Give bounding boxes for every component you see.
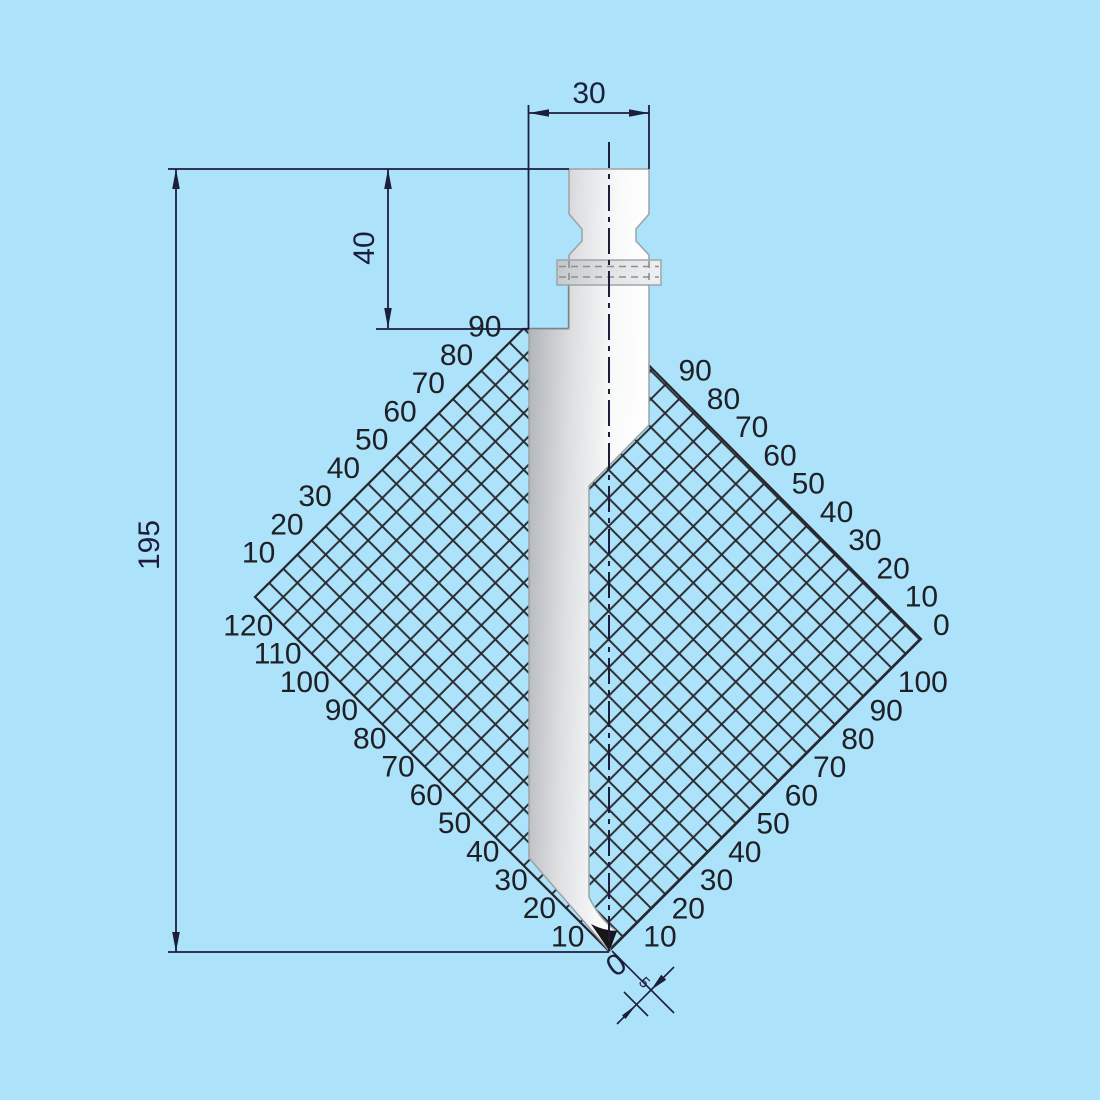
punch-drawing-svg: 1020304050607080901201101009080706050403…: [0, 0, 1100, 1100]
grid-axis-label: 10: [643, 921, 676, 954]
dim-text-total: 195: [133, 520, 166, 570]
grid-axis-label: 40: [327, 452, 360, 485]
grid-axis-label: 40: [820, 496, 853, 529]
grid-axis-label: 10: [242, 537, 275, 570]
grid-axis-label: 70: [735, 411, 768, 444]
grid-axis-label: 10: [551, 920, 584, 953]
grid-axis-label: 100: [898, 666, 948, 699]
grid-axis-label: 0: [933, 609, 950, 642]
grid-axis-label: 50: [756, 808, 789, 841]
dim-text-width: 30: [572, 77, 605, 110]
grid-axis-label: 20: [270, 508, 303, 541]
grid-axis-label: 100: [280, 666, 330, 699]
grid-axis-label: 60: [763, 439, 796, 472]
grid-axis-label: 80: [707, 383, 740, 416]
grid-axis-label: 30: [848, 524, 881, 557]
grid-axis-label: 90: [870, 695, 903, 728]
grid-axis-label: 40: [728, 836, 761, 869]
grid-axis-label: 90: [468, 311, 501, 344]
dim-text-shank: 40: [348, 231, 381, 264]
grid-axis-label: 20: [876, 552, 909, 585]
grid-axis-label: 50: [355, 424, 388, 457]
grid-axis-label: 80: [440, 339, 473, 372]
grid-axis-label: 60: [383, 395, 416, 428]
grid-axis-label: 30: [700, 864, 733, 897]
drawing-canvas: 1020304050607080901201101009080706050403…: [0, 0, 1100, 1100]
grid-axis-label: 90: [679, 355, 712, 388]
grid-axis-label: 30: [298, 480, 331, 513]
grid-axis-label: 10: [905, 581, 938, 614]
grid-axis-label: 50: [792, 468, 825, 501]
grid-axis-label: 70: [813, 751, 846, 784]
grid-axis-label: 60: [785, 779, 818, 812]
grid-axis-label: 80: [841, 723, 874, 756]
grid-axis-label: 20: [672, 892, 705, 925]
grid-axis-label: 70: [412, 367, 445, 400]
